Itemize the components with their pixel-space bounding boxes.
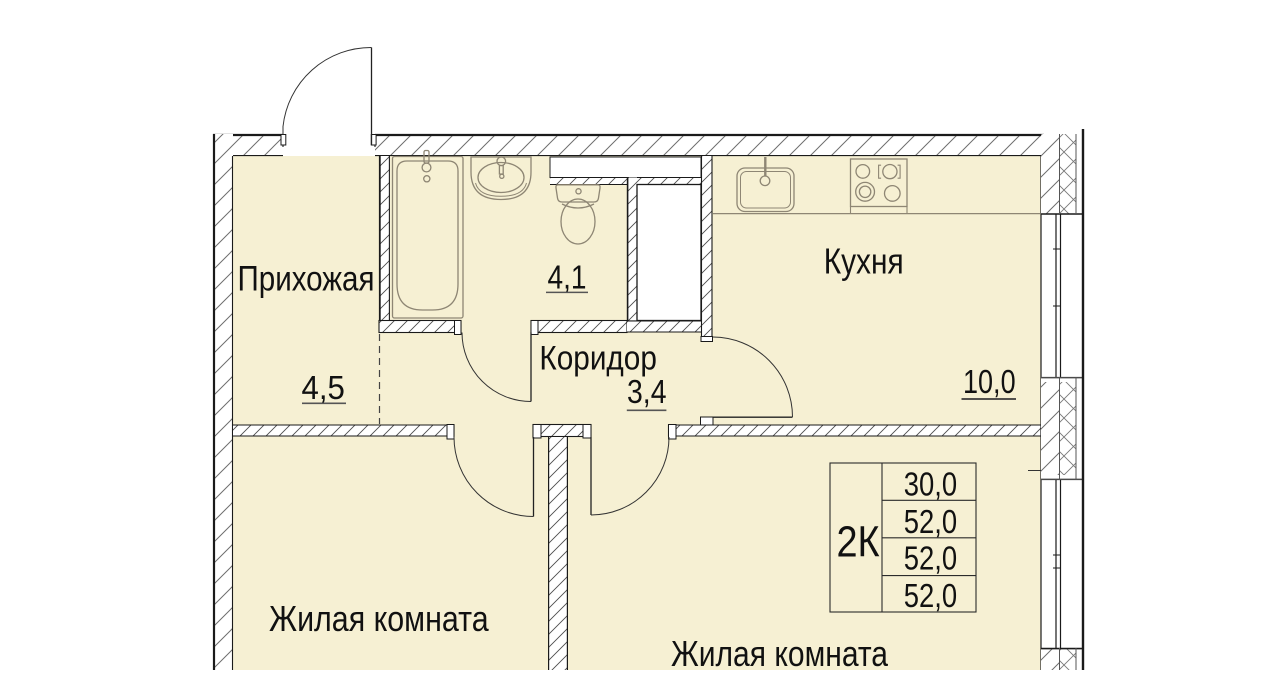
svg-text:Кухня: Кухня (824, 241, 904, 282)
svg-text:30,0: 30,0 (904, 467, 957, 504)
svg-text:3,4: 3,4 (627, 374, 667, 411)
svg-text:2К: 2К (837, 519, 881, 567)
svg-text:52,0: 52,0 (904, 578, 957, 615)
svg-text:10,0: 10,0 (963, 364, 1016, 401)
svg-text:52,0: 52,0 (904, 541, 957, 578)
svg-text:4,1: 4,1 (548, 259, 587, 296)
svg-text:4,5: 4,5 (302, 370, 345, 407)
svg-text:52,0: 52,0 (904, 504, 957, 541)
svg-text:Жилая комната: Жилая комната (269, 598, 489, 639)
svg-text:Жилая комната: Жилая комната (671, 633, 889, 670)
svg-text:Прихожая: Прихожая (238, 260, 375, 299)
svg-text:Коридор: Коридор (539, 340, 657, 378)
